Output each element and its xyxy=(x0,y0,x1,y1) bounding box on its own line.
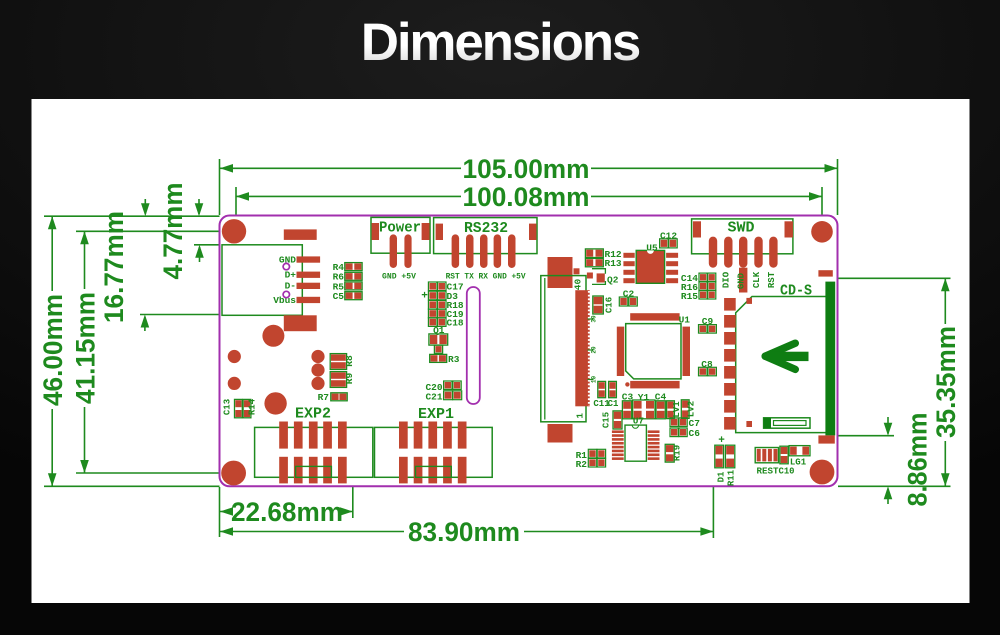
svg-text:C5: C5 xyxy=(333,291,345,302)
svg-text:C6: C6 xyxy=(689,428,701,439)
svg-text:RST: RST xyxy=(767,271,777,288)
svg-text:D1: D1 xyxy=(717,471,727,482)
svg-text:41.15mm: 41.15mm xyxy=(71,292,101,404)
svg-text:40: 40 xyxy=(573,279,584,291)
svg-text:GND: GND xyxy=(737,272,747,289)
svg-text:R7: R7 xyxy=(318,392,330,403)
svg-text:C21: C21 xyxy=(425,392,442,403)
svg-text:8.86mm: 8.86mm xyxy=(903,413,933,507)
svg-text:R3: R3 xyxy=(448,354,460,365)
svg-text:SWD: SWD xyxy=(728,221,755,237)
svg-text:LV2: LV2 xyxy=(687,401,697,417)
svg-text:R11: R11 xyxy=(727,469,737,486)
svg-text:46.00mm: 46.00mm xyxy=(38,294,68,406)
svg-text:30: 30 xyxy=(591,315,598,323)
svg-text:REST: REST xyxy=(757,467,780,477)
svg-text:R14: R14 xyxy=(248,398,258,415)
svg-text:105.00mm: 105.00mm xyxy=(463,154,590,184)
svg-text:D-: D- xyxy=(285,281,296,292)
svg-text:R9: R9 xyxy=(344,373,355,385)
svg-text:GND +5V: GND +5V xyxy=(382,271,417,281)
svg-text:20: 20 xyxy=(591,346,598,354)
svg-text:EXP2: EXP2 xyxy=(295,407,331,423)
svg-text:Q2: Q2 xyxy=(607,275,619,286)
svg-text:C16: C16 xyxy=(605,297,615,313)
svg-text:CLK: CLK xyxy=(752,271,762,288)
svg-text:U1: U1 xyxy=(679,315,691,326)
svg-text:LG1: LG1 xyxy=(790,458,807,468)
svg-text:100.08mm: 100.08mm xyxy=(463,182,590,212)
svg-text:22.68mm: 22.68mm xyxy=(231,497,343,527)
svg-text:D+: D+ xyxy=(285,270,297,281)
svg-text:Power: Power xyxy=(379,221,421,237)
svg-text:C18: C18 xyxy=(447,317,464,328)
svg-text:83.90mm: 83.90mm xyxy=(408,517,520,547)
svg-text:C13: C13 xyxy=(223,399,233,415)
svg-text:1: 1 xyxy=(575,413,586,419)
svg-text:R15: R15 xyxy=(681,291,698,302)
svg-text:C15: C15 xyxy=(602,412,612,428)
svg-text:RST TX RX GND +5V: RST TX RX GND +5V xyxy=(446,271,527,281)
svg-text:DIO: DIO xyxy=(722,271,732,288)
svg-text:C1: C1 xyxy=(608,399,619,409)
svg-text:R8: R8 xyxy=(344,355,355,367)
svg-text:C10: C10 xyxy=(779,467,795,477)
svg-text:R2: R2 xyxy=(576,459,588,470)
svg-text:R19: R19 xyxy=(673,445,683,461)
svg-text:10: 10 xyxy=(591,376,598,384)
svg-text:+: + xyxy=(421,291,428,303)
svg-text:35.35mm: 35.35mm xyxy=(931,326,961,438)
svg-text:16.77mm: 16.77mm xyxy=(99,211,129,323)
svg-text:LV1: LV1 xyxy=(672,401,682,418)
svg-text:EXP1: EXP1 xyxy=(418,407,454,423)
svg-text:4.77mm: 4.77mm xyxy=(158,183,188,280)
svg-text:R13: R13 xyxy=(605,258,622,269)
